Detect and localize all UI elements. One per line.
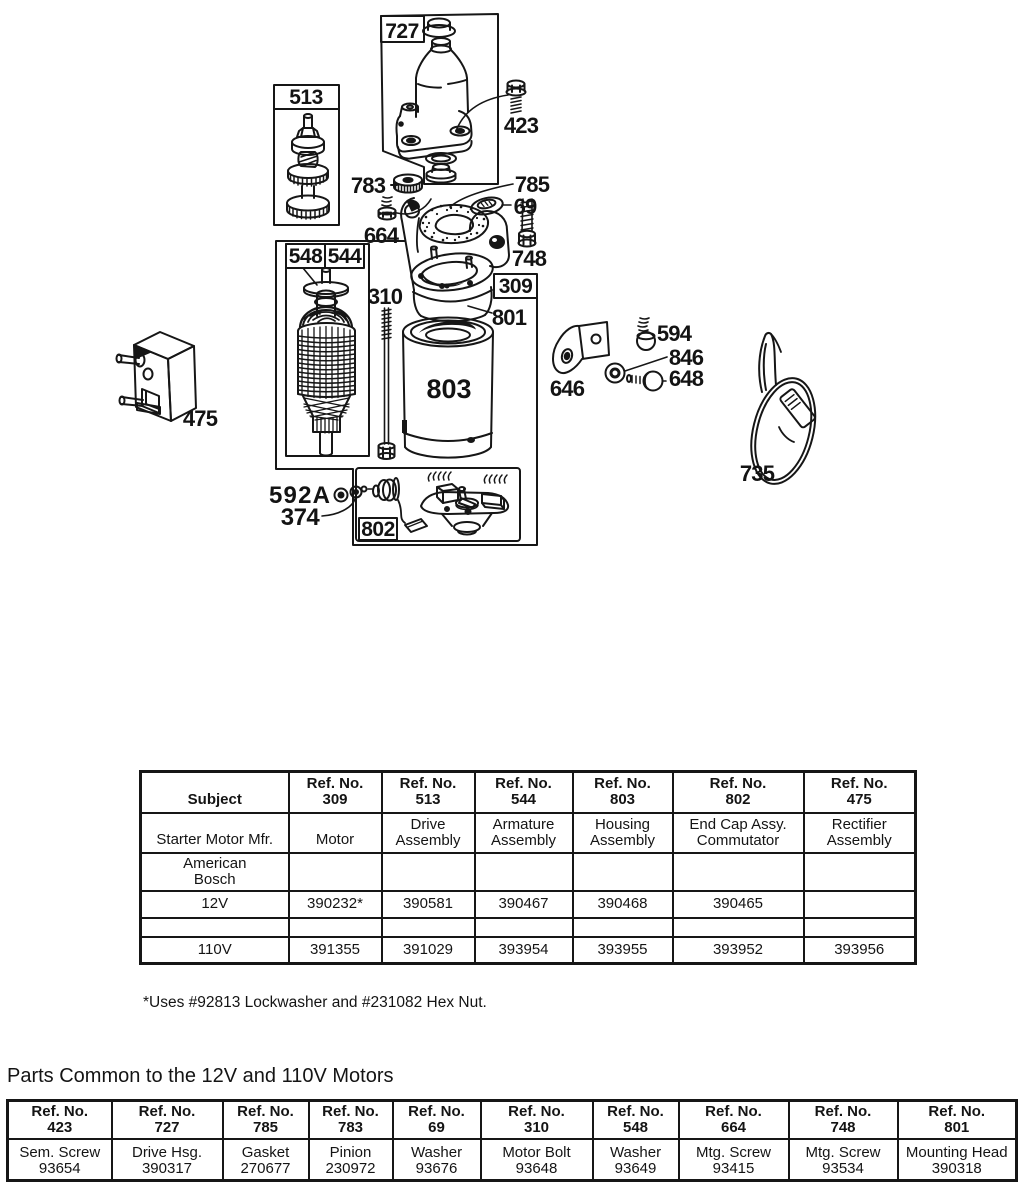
svg-text:544: 544 [328,245,362,268]
svg-text:803: 803 [426,374,471,404]
svg-text:783: 783 [351,173,386,198]
svg-text:727: 727 [385,20,419,43]
svg-text:648: 648 [669,366,704,391]
svg-text:374: 374 [281,504,321,531]
svg-text:646: 646 [550,376,585,401]
svg-text:594: 594 [657,321,693,346]
svg-text:801: 801 [492,305,527,330]
svg-text:513: 513 [289,86,323,109]
svg-text:748: 748 [512,246,547,271]
svg-text:735: 735 [740,461,775,486]
svg-text:802: 802 [361,518,395,541]
svg-text:475: 475 [183,406,218,431]
svg-text:423: 423 [504,113,539,138]
svg-text:310: 310 [368,284,403,309]
svg-text:548: 548 [289,245,323,268]
svg-text:309: 309 [499,275,533,298]
